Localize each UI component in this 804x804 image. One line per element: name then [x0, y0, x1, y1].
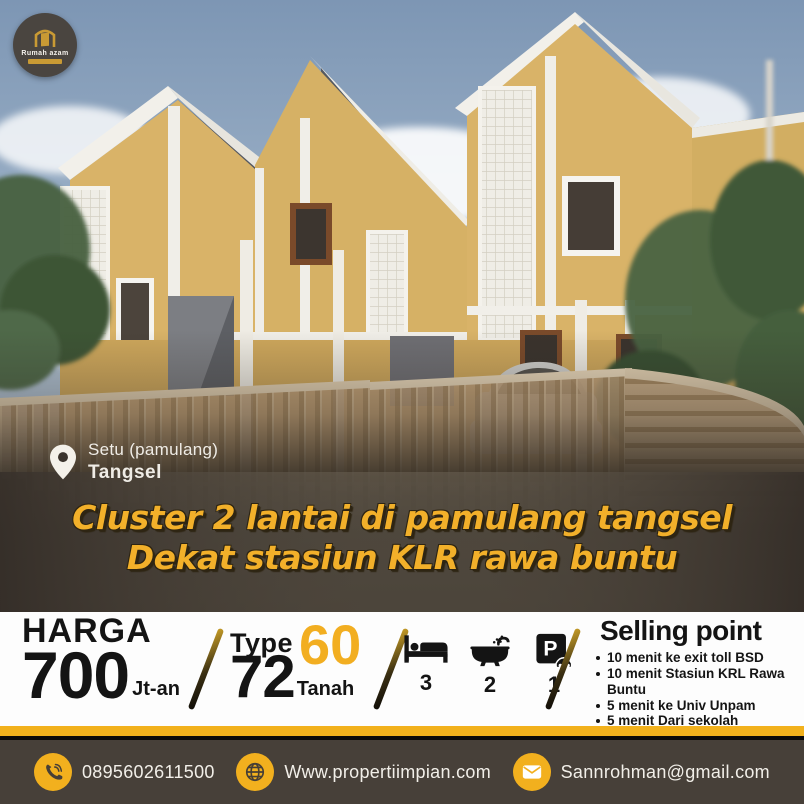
property-poster: Rumah azam Setu (pamulang) Tangsel Clust… — [0, 0, 804, 804]
price-value: 700 — [22, 644, 129, 707]
selling-point-item: 10 menit ke exit toll BSD — [594, 650, 799, 666]
svg-text:P: P — [543, 638, 557, 661]
headline-line1: Cluster 2 lantai di pamulang tangsel — [0, 498, 804, 538]
selling-point-item: 5 menit ke Univ Unpam — [594, 698, 799, 714]
bath-icon — [469, 632, 511, 668]
contact-footer: 0895602611500 Www.propertiimpian.com — [0, 726, 804, 804]
selling-points: Selling point 10 menit ke exit toll BSD … — [594, 612, 799, 729]
bathroom-count: 2 — [484, 672, 496, 698]
email-icon — [513, 753, 551, 791]
location-area: Setu (pamulang) — [88, 440, 218, 460]
website-url: Www.propertiimpian.com — [284, 762, 491, 783]
selling-point-item: 10 menit Stasiun KRL Rawa Buntu — [594, 666, 799, 698]
phone-icon — [34, 753, 72, 791]
headline-line2: Dekat stasiun KLR rawa buntu — [0, 538, 804, 578]
house-render-photo: Rumah azam Setu (pamulang) Tangsel Clust… — [0, 0, 804, 612]
logo-text: Rumah azam — [21, 50, 68, 57]
map-pin-icon — [50, 444, 76, 480]
type-land-size: 72 — [230, 648, 295, 705]
phone-number: 0895602611500 — [82, 762, 215, 783]
poster-headline: Cluster 2 lantai di pamulang tangsel Dek… — [0, 498, 804, 579]
bedrooms-feature: 3 — [402, 632, 450, 698]
website-contact[interactable]: Www.propertiimpian.com — [236, 753, 491, 791]
logo-banner — [28, 59, 62, 64]
brand-logo: Rumah azam — [13, 13, 77, 77]
location-city: Tangsel — [88, 462, 218, 484]
bedroom-count: 3 — [420, 670, 432, 696]
email-address: Sannrohman@gmail.com — [561, 762, 770, 783]
divider-slash — [188, 628, 224, 710]
gold-stripe — [0, 726, 804, 736]
type-block: Type 60 72 Tanah — [230, 620, 361, 705]
phone-contact[interactable]: 0895602611500 — [34, 753, 215, 791]
type-building-size: 60 — [299, 620, 361, 670]
price-unit: Jt-an — [132, 678, 180, 701]
price-block: HARGA 700 Jt-an — [22, 614, 180, 707]
selling-points-heading: Selling point — [600, 616, 799, 647]
type-land-label: Tanah — [297, 678, 354, 701]
door-icon — [32, 26, 58, 48]
bathrooms-feature: 2 — [466, 632, 514, 698]
location-badge: Setu (pamulang) Tangsel — [50, 440, 218, 484]
info-strip: HARGA 700 Jt-an Type 60 72 Tanah — [0, 612, 804, 726]
selling-points-list: 10 menit ke exit toll BSD 10 menit Stasi… — [594, 650, 799, 730]
bed-icon — [403, 632, 449, 666]
globe-icon — [236, 753, 274, 791]
email-contact[interactable]: Sannrohman@gmail.com — [513, 753, 770, 791]
